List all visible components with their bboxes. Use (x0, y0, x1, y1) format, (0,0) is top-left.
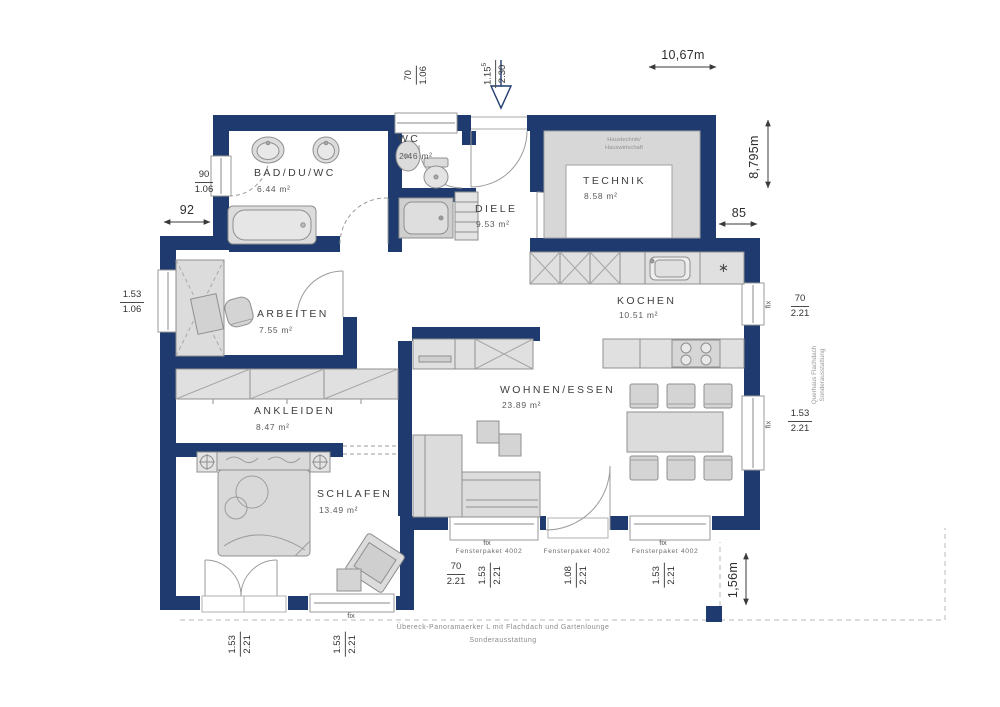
essen-window-fix: fix (762, 411, 774, 437)
room-label-schlafen: SCHLAFEN (317, 488, 392, 500)
bottom-note-line1: Übereck-Panoramaerker L mit Flachdach un… (358, 624, 648, 631)
room-area-arbeiten: 7.55 m² (259, 325, 293, 335)
schlafen-window (310, 594, 394, 612)
bad-window-dim: 901.06 (184, 166, 224, 198)
room-label-bad: BAD/DU/WC (254, 167, 336, 179)
room-label-wohnen: WOHNEN/ESSEN (500, 384, 615, 396)
desk-chair (223, 295, 255, 329)
desk (176, 260, 224, 356)
wohnen-window-1 (450, 516, 538, 540)
room-area-technik: 8.58 m² (584, 191, 618, 201)
top-window (395, 113, 457, 133)
bottom-group1-dim-b: 1.532.21 (472, 555, 508, 595)
bathroom-sink-1 (252, 137, 284, 163)
nightstand-right (310, 452, 330, 472)
nightstand-left (197, 452, 217, 472)
wohnen-window-2 (630, 516, 710, 540)
bottom-group1-package: Fensterpaket 4002 (450, 548, 528, 555)
terrace-post (706, 606, 722, 622)
top-window-dim: 701.06 (398, 55, 434, 95)
right-offset-dim: 85 (724, 206, 754, 220)
floor-plan-drawing (0, 0, 1000, 707)
room-area-diele: 9.53 m² (476, 219, 510, 229)
entrance-opening (471, 115, 527, 131)
kochen-window-fix: fix (762, 291, 774, 317)
bottom-group1-dim-a: 702.21 (436, 558, 476, 590)
schlafen-window-fix: fix (336, 611, 366, 620)
schlafen-door-dim: 1.532.21 (222, 624, 258, 664)
kochen-window-dim: 702.21 (780, 290, 820, 322)
room-area-ankleiden: 8.47 m² (256, 422, 290, 432)
bottom-group2-dim: 1.082.21 (558, 555, 594, 595)
kitchen-counter (530, 252, 744, 284)
side-tables (477, 421, 521, 456)
bottom-note-line2: Sonderausstattung (358, 637, 648, 644)
bottom-group2-package: Fensterpaket 4002 (538, 548, 616, 555)
essen-window (742, 396, 764, 470)
terrace-depth-dim: 1,56m (724, 552, 742, 608)
kochen-window (742, 283, 764, 325)
room-label-arbeiten: ARBEITEN (257, 308, 329, 320)
right-margin-note: Querhaus Flachdach Sonderausstattung (806, 320, 832, 430)
hall-shelf (455, 192, 478, 240)
technik-note: Haustechnik/ Hauswirtschaft (586, 137, 662, 153)
overall-depth-dim: 8,795m (746, 126, 762, 188)
room-area-wohnen: 23.89 m² (502, 400, 541, 410)
bathtub (228, 206, 316, 244)
room-label-ankleiden: ANKLEIDEN (254, 405, 335, 417)
small-table (337, 569, 361, 591)
shower (399, 198, 453, 238)
room-area-kochen: 10.51 m² (619, 310, 658, 320)
dining-table (627, 412, 723, 452)
room-label-technik: TECHNIK (583, 175, 646, 187)
sideboard (413, 339, 533, 369)
overall-width-dim: 10,67m (645, 48, 721, 62)
room-label-kochen: KOCHEN (617, 295, 676, 307)
floor-plan-page: BAD/DU/WC 6.44 m² WC 2.46 m² DIELE 9.53 … (0, 0, 1000, 707)
bottom-group1-fix: fix (472, 538, 502, 547)
bottom-group3-fix: fix (648, 538, 678, 547)
bottom-group3-package: Fensterpaket 4002 (626, 548, 704, 555)
kitchen-island (603, 339, 744, 368)
room-area-wc: 2.46 m² (399, 151, 433, 161)
freezer-symbol: ∗ (718, 260, 729, 276)
wardrobe (176, 369, 398, 404)
entrance-dim: 1.1552.30 (477, 52, 513, 96)
bottom-group3-dim: 1.532.21 (646, 555, 682, 595)
bathroom-sink-2 (313, 137, 339, 163)
room-label-wc: WC (398, 133, 420, 145)
bed (217, 452, 310, 556)
schlafen-french-door (202, 596, 286, 612)
left-offset-dim: 92 (170, 203, 204, 217)
toilet (424, 158, 448, 188)
room-area-bad: 6.44 m² (257, 184, 291, 194)
room-area-schlafen: 13.49 m² (319, 505, 358, 515)
arbeiten-window-dim: 1.531.06 (110, 286, 154, 318)
arbeiten-window (158, 270, 178, 332)
terrace-door (548, 518, 608, 538)
room-label-diele: DIELE (475, 203, 517, 215)
